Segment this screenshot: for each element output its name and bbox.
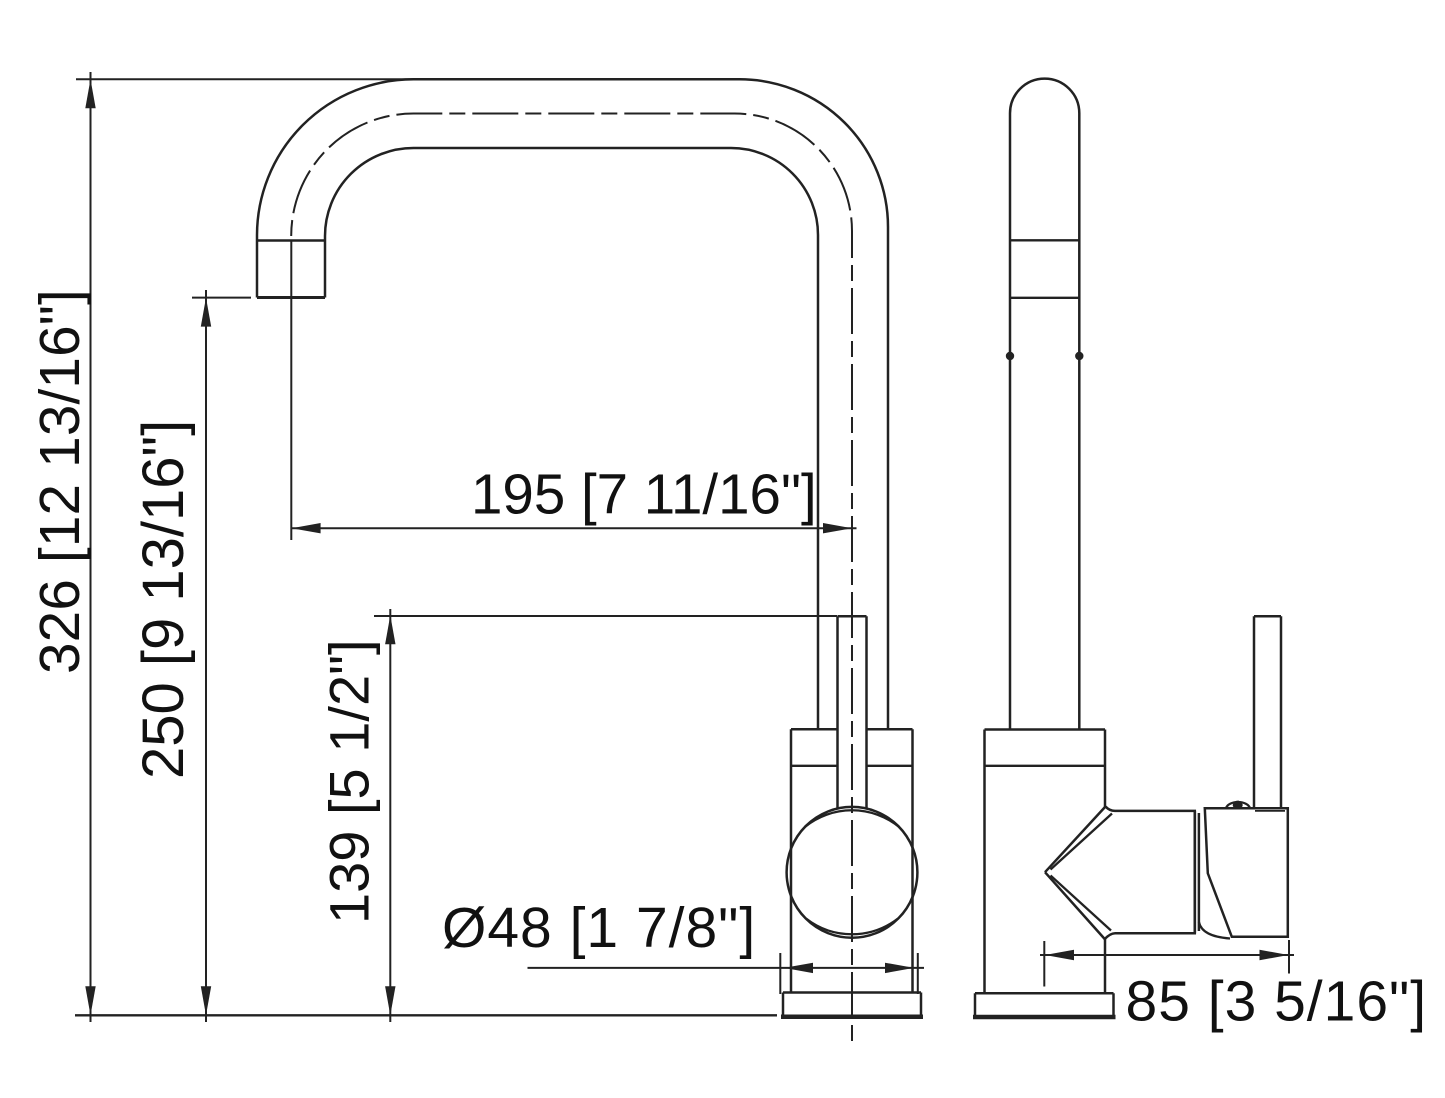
- svg-text:Ø48 [1 7/8"]: Ø48 [1 7/8"]: [442, 896, 756, 960]
- svg-text:326 [12 13/16"]: 326 [12 13/16"]: [28, 289, 91, 674]
- svg-text:85 [3 5/16"]: 85 [3 5/16"]: [1126, 970, 1428, 1034]
- svg-text:250 [9 13/16"]: 250 [9 13/16"]: [131, 420, 196, 779]
- svg-text:139 [5 1/2"]: 139 [5 1/2"]: [318, 639, 381, 924]
- svg-text:195 [7 11/16"]: 195 [7 11/16"]: [471, 463, 817, 526]
